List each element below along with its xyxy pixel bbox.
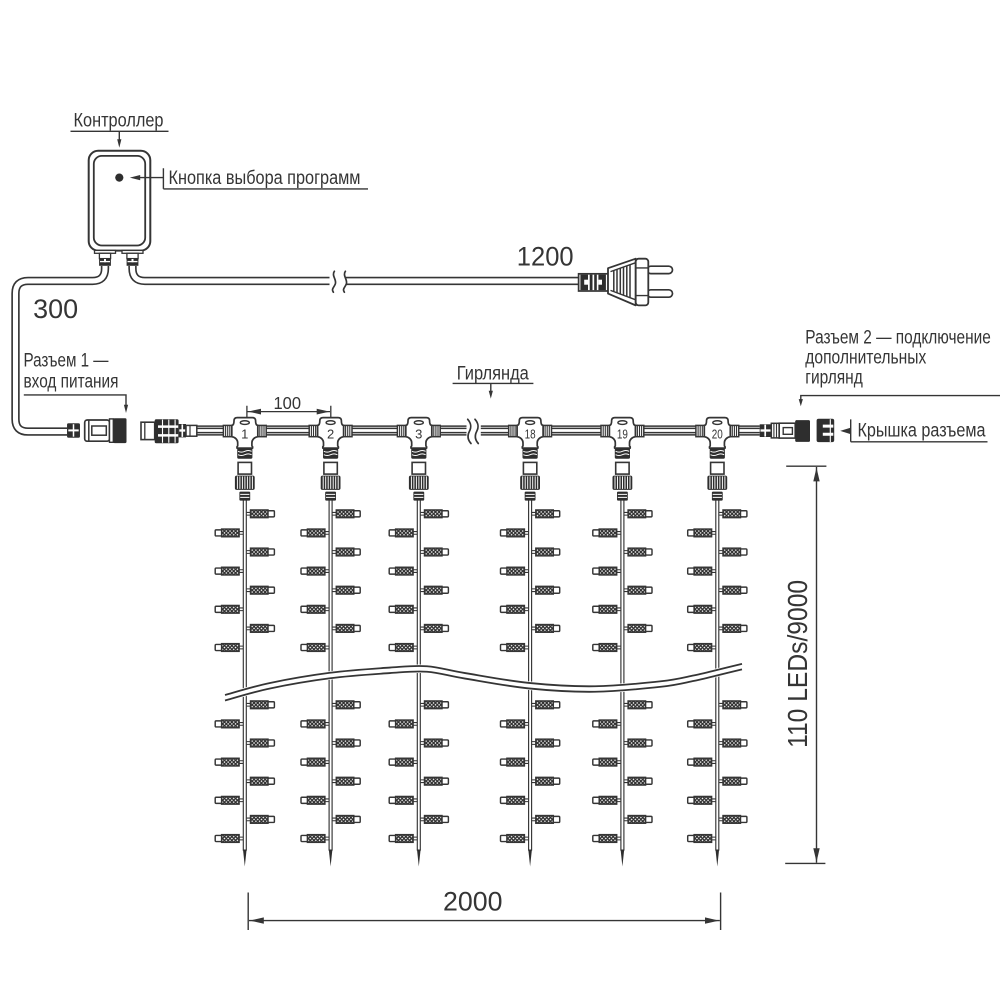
- svg-text:Разъем 1 —: Разъем 1 —: [24, 350, 109, 372]
- svg-text:18: 18: [525, 427, 536, 442]
- svg-text:1200: 1200: [517, 241, 574, 271]
- svg-text:19: 19: [617, 427, 628, 442]
- svg-text:вход питания: вход питания: [24, 371, 119, 393]
- svg-text:110 LEDs/9000: 110 LEDs/9000: [782, 580, 813, 748]
- svg-text:1: 1: [241, 427, 248, 442]
- svg-text:20: 20: [712, 427, 723, 442]
- svg-text:3: 3: [415, 427, 422, 442]
- svg-text:Гирлянда: Гирлянда: [457, 363, 529, 385]
- svg-text:100: 100: [274, 393, 302, 413]
- svg-text:2000: 2000: [443, 887, 503, 917]
- svg-text:300: 300: [33, 294, 78, 324]
- svg-text:Кнопка выбора программ: Кнопка выбора программ: [169, 167, 361, 189]
- svg-text:гирлянд: гирлянд: [805, 366, 863, 388]
- svg-text:2: 2: [327, 427, 334, 442]
- svg-text:Крышка разъема: Крышка разъема: [858, 420, 986, 442]
- svg-text:Контроллер: Контроллер: [74, 110, 164, 132]
- svg-text:Разъем 2 — подключение: Разъем 2 — подключение: [805, 327, 991, 349]
